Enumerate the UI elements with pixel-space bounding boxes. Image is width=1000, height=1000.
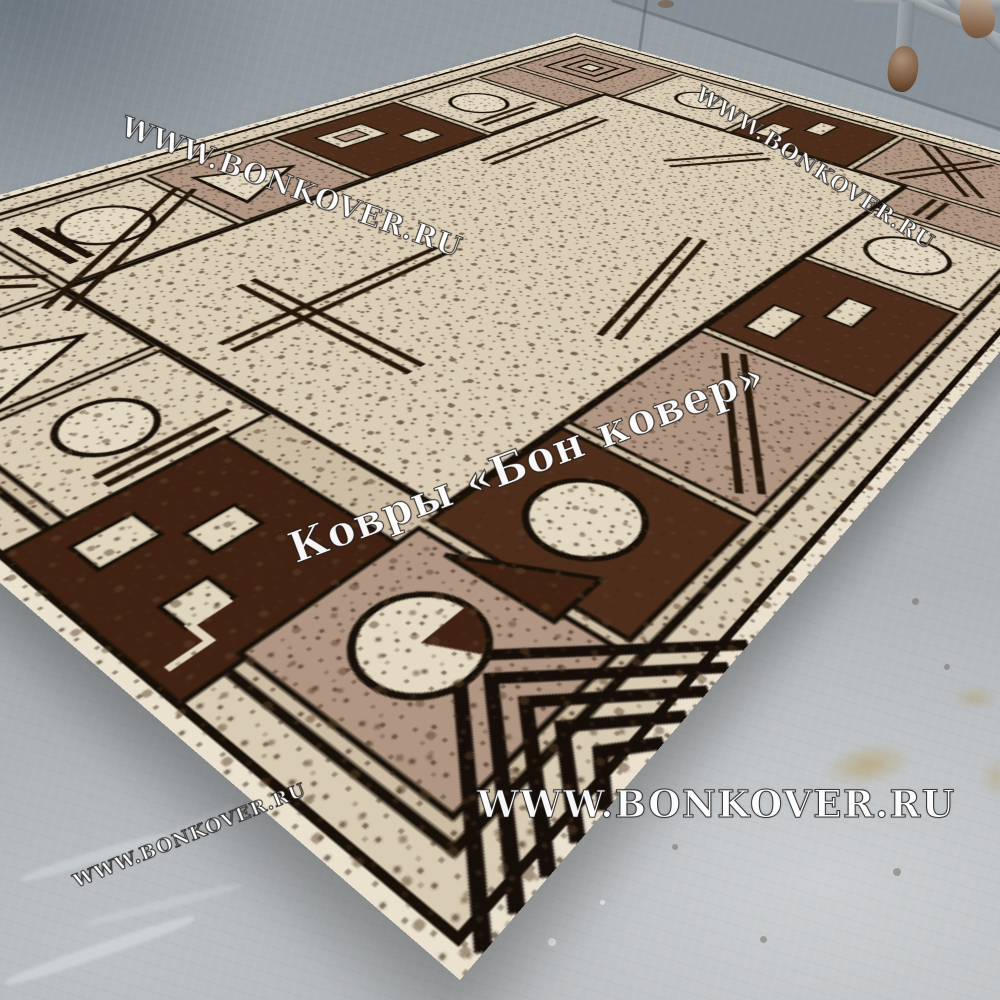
cart-caster-wheel bbox=[885, 44, 921, 94]
photo-scene: WWW.BONKOVER.RU WWW.BONKOVER.RU Ковры «Б… bbox=[0, 0, 1000, 1000]
watermark-bottom-center: WWW.BONKOVER.RU bbox=[477, 782, 956, 826]
